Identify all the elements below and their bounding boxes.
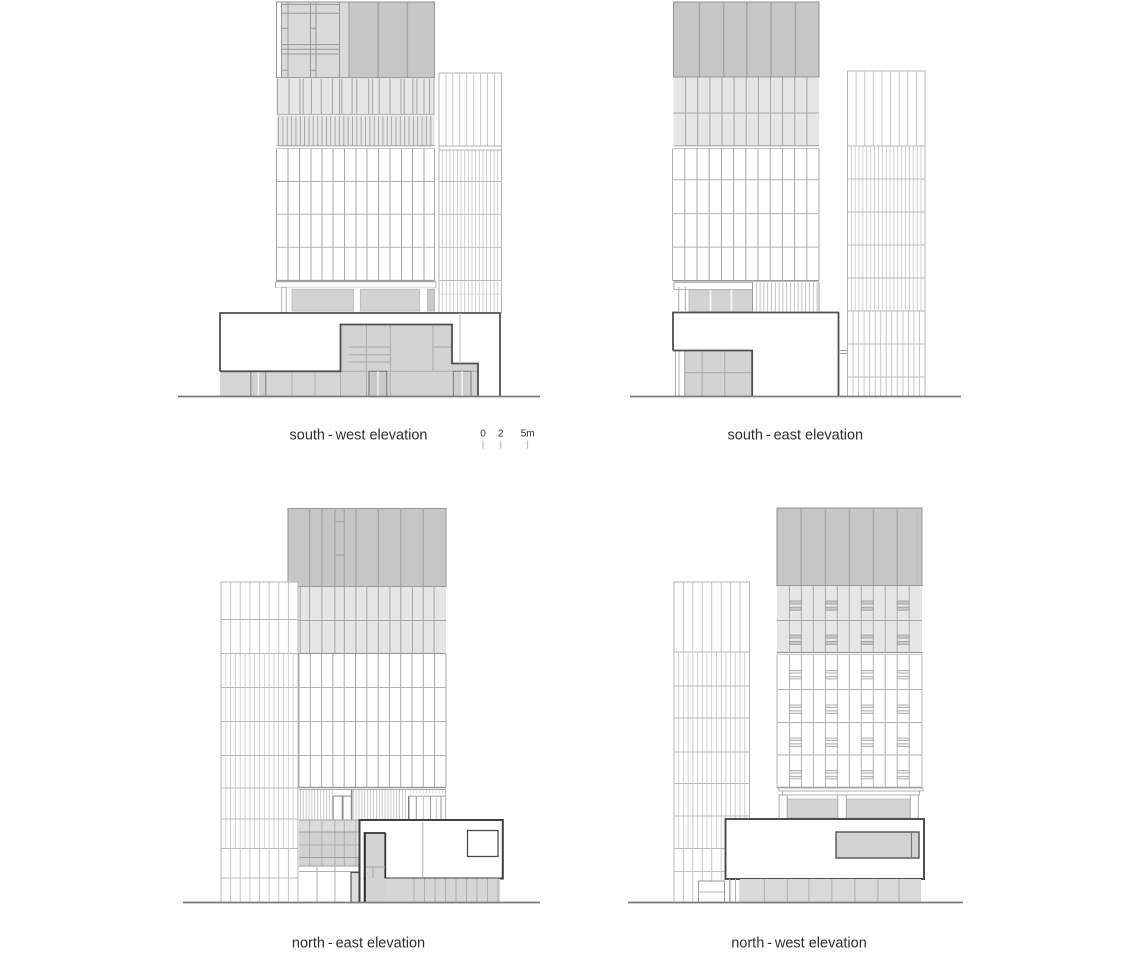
svg-text:south - east elevation: south - east elevation [728, 428, 864, 444]
svg-text:2: 2 [498, 429, 504, 440]
svg-text:south - west elevation: south - west elevation [290, 428, 428, 444]
svg-text:north - east elevation: north - east elevation [292, 936, 425, 952]
svg-text:north - west elevation: north - west elevation [731, 936, 867, 952]
svg-text:0: 0 [480, 429, 486, 440]
svg-text:5m: 5m [521, 429, 535, 440]
